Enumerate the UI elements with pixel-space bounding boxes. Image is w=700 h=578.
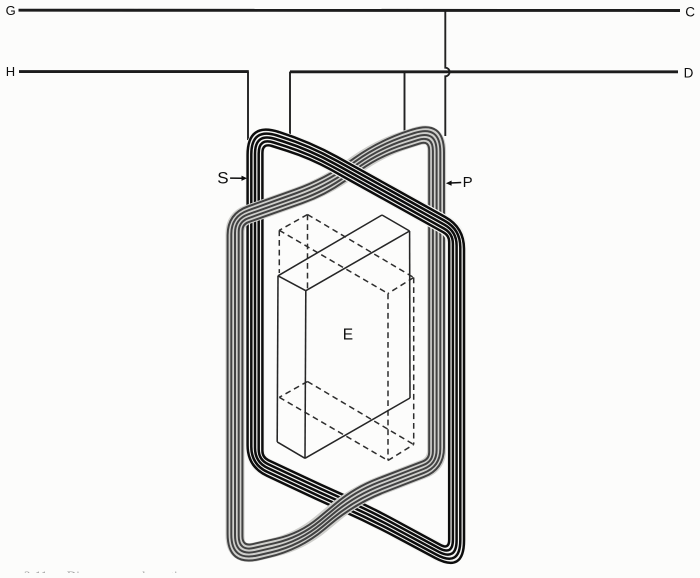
svg-text:G: G xyxy=(6,3,16,18)
svg-text:E: E xyxy=(343,327,353,344)
svg-text:S: S xyxy=(217,169,228,188)
svg-text:H: H xyxy=(6,64,15,79)
svg-text:D: D xyxy=(684,66,694,81)
svg-text:2-11 — Diagramma schematico: 2-11 — Diagramma schematico xyxy=(24,568,190,573)
svg-text:C: C xyxy=(685,4,695,19)
svg-text:P: P xyxy=(463,174,473,191)
